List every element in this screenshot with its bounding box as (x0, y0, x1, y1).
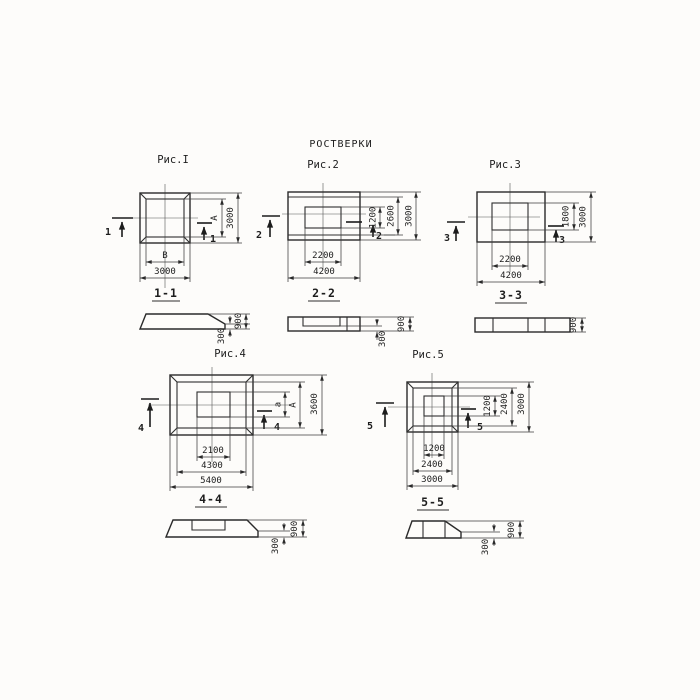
fig1-dim-outer-width: 3000 (154, 267, 176, 277)
fig4-section-shape (166, 520, 258, 537)
fig2-plan: 2 2 1200 2600 3000 2200 (256, 183, 421, 282)
fig5-inner-contour (424, 396, 444, 416)
fig2-label: Рис.2 (307, 159, 339, 171)
fig3-section-view: 900 (475, 317, 586, 333)
fig4-dim-inner-height: а (274, 402, 284, 407)
fig4-section-label: 4-4 (199, 492, 223, 506)
fig4-label: Рис.4 (214, 348, 246, 360)
fig4-dim-inner-width: 2100 (202, 446, 224, 456)
figure-4: Рис.4 4 4 а А (138, 348, 327, 554)
fig1-section-shape (140, 314, 225, 329)
figure-2: Рис.2 2 2 1200 2600 (256, 159, 421, 347)
fig3-dim-inner-width: 2200 (499, 255, 521, 265)
fig3-section-shape (475, 318, 570, 332)
fig2-dim-middle-height: 2600 (387, 205, 397, 227)
fig2-section-label: 2-2 (312, 286, 336, 300)
fig3-plan: 3 3 1800 3000 2200 4200 (444, 183, 596, 286)
fig2-section-view: 300 900 (288, 316, 414, 347)
grillage-drawing: РОСТВЕРКИ Рис.I 1 1 А (0, 0, 700, 700)
fig5-section-dim-total: 900 (507, 522, 517, 538)
fig1-dim-inner-height: А (210, 215, 220, 221)
fig1-cut-mark-left: 1 (105, 227, 111, 238)
fig5-section-dim-step: 300 (481, 539, 491, 555)
fig3-label: Рис.3 (489, 159, 521, 171)
fig2-dim-outer-width: 4200 (313, 267, 335, 277)
fig4-section-dim-step: 300 (271, 538, 281, 554)
fig3-dim-outer-height: 3000 (579, 206, 589, 228)
fig1-plan: 1 1 А 3000 В 3000 (105, 184, 242, 288)
fig5-dim-outer-height: 3000 (517, 393, 527, 415)
fig3-section-label: 3-3 (499, 288, 523, 302)
figure-5: Рис.5 5 5 1200 2400 (367, 349, 534, 555)
fig3-cut-mark-left: 3 (444, 233, 450, 244)
fig4-cut-mark-left: 4 (138, 423, 144, 434)
fig2-dim-outer-height: 3000 (405, 205, 415, 227)
fig2-outer-contour (288, 192, 360, 240)
fig5-dim-middle-height: 2400 (500, 393, 510, 415)
fig1-dim-inner-width: В (162, 251, 167, 261)
fig1-section-dim-step: 300 (217, 328, 227, 344)
fig1-section-dim-total: 900 (234, 313, 244, 329)
fig2-section-dim-total: 900 (397, 316, 407, 332)
fig3-section-dim-total: 900 (569, 317, 579, 333)
fig5-cut-mark-right: 5 (477, 422, 483, 433)
fig3-dim-outer-width: 4200 (500, 271, 522, 281)
fig5-label: Рис.5 (412, 349, 444, 361)
fig4-section-dim-total: 900 (290, 521, 300, 537)
fig4-plan: 4 4 а А 3600 2100 4300 (138, 367, 327, 491)
fig1-dim-outer-height: 3000 (226, 207, 236, 229)
fig5-dim-middle-width: 2400 (421, 460, 443, 470)
fig4-dim-middle-width: 4300 (201, 461, 223, 471)
fig5-section-shape (406, 521, 461, 538)
fig5-cut-mark-left: 5 (367, 421, 373, 432)
fig4-cut-mark-right: 4 (274, 422, 280, 433)
fig2-dim-inner-width: 2200 (312, 251, 334, 261)
fig1-section-label: 1-1 (154, 286, 178, 300)
fig2-section-shape (288, 317, 360, 331)
fig2-cut-mark-left: 2 (256, 230, 262, 241)
fig4-section-view: 300 900 (166, 520, 307, 554)
fig4-dim-outer-width: 5400 (200, 476, 222, 486)
fig1-section-view: 300 900 (140, 313, 250, 344)
figure-1: Рис.I 1 1 А 3000 (105, 154, 250, 344)
fig5-section-view: 300 900 (406, 521, 524, 555)
sheet-title: РОСТВЕРКИ (309, 139, 372, 150)
fig4-dim-middle-height: А (289, 402, 299, 408)
fig3-cut-mark-right: 3 (559, 235, 565, 246)
figure-3: Рис.3 3 3 1800 3000 2200 (444, 159, 596, 333)
fig1-label: Рис.I (157, 154, 189, 166)
fig5-dim-inner-height: 1200 (483, 395, 493, 417)
fig5-section-label: 5-5 (421, 495, 445, 509)
fig2-section-dim-step: 300 (378, 331, 388, 347)
fig5-dim-outer-width: 3000 (421, 475, 443, 485)
fig4-dim-outer-height: 3600 (310, 393, 320, 415)
fig3-dim-inner-height: 1800 (562, 206, 572, 228)
fig4-inner-contour (197, 392, 230, 417)
fig2-dim-inner-height: 1200 (369, 207, 379, 229)
fig5-dim-inner-width: 1200 (423, 444, 445, 454)
drawing-sheet: РОСТВЕРКИ Рис.I 1 1 А (0, 0, 700, 700)
fig5-plan: 5 5 1200 2400 3000 1200 2400 (367, 373, 534, 490)
